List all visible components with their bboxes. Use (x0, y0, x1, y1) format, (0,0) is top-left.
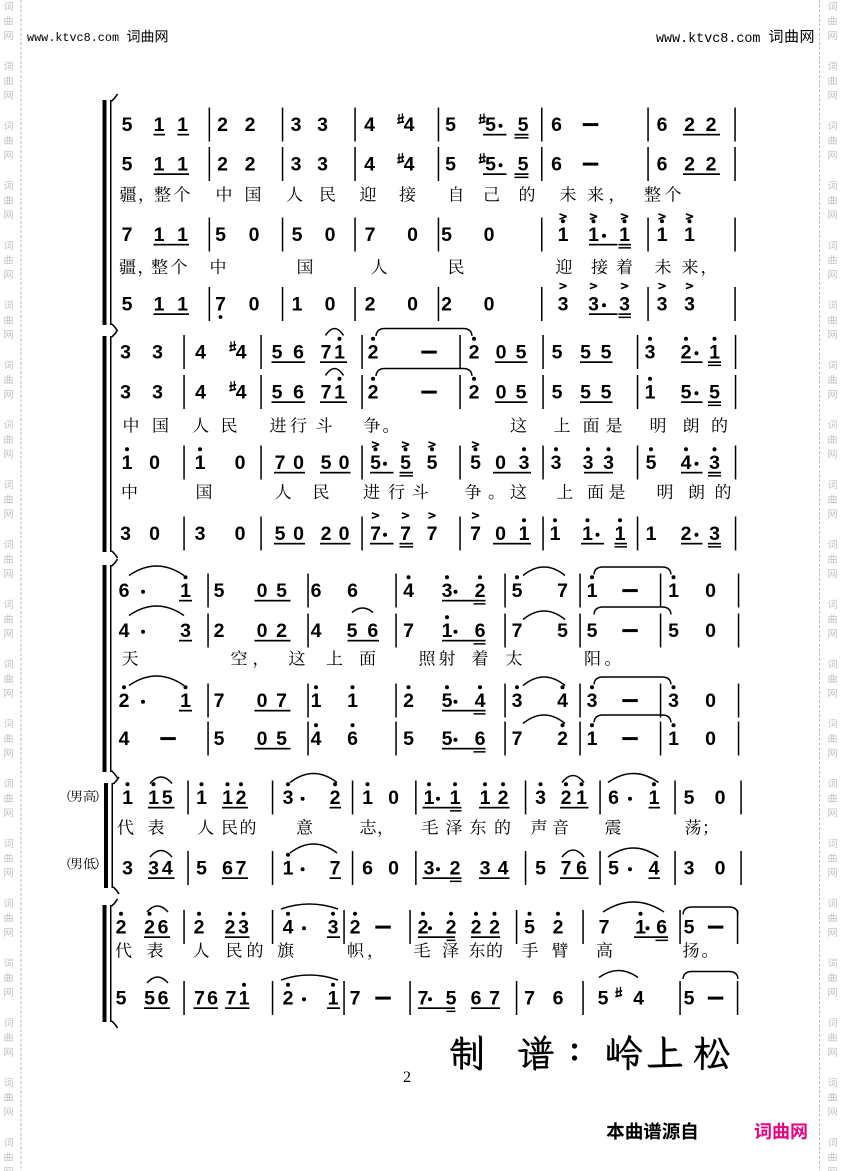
svg-text:5: 5 (116, 988, 127, 1010)
svg-text:5: 5 (580, 382, 591, 404)
svg-text:1: 1 (334, 342, 345, 364)
svg-text:5: 5 (445, 114, 456, 136)
svg-text:2: 2 (119, 690, 130, 712)
svg-text:4: 4 (162, 858, 173, 880)
svg-text:2: 2 (194, 917, 205, 939)
svg-text:1: 1 (292, 294, 303, 316)
svg-text:2: 2 (681, 342, 692, 364)
svg-text:7: 7 (599, 917, 610, 939)
svg-text:0: 0 (249, 294, 260, 316)
svg-text:7: 7 (226, 988, 237, 1010)
svg-text:5: 5 (516, 342, 527, 364)
svg-text:1: 1 (347, 690, 358, 712)
svg-text:2: 2 (471, 917, 482, 939)
svg-text:0: 0 (715, 787, 726, 809)
svg-text:2: 2 (553, 917, 564, 939)
svg-text:2: 2 (214, 620, 225, 642)
svg-text:0: 0 (149, 452, 160, 474)
svg-text:2: 2 (706, 154, 717, 176)
svg-text:4: 4 (633, 988, 644, 1010)
svg-text:5: 5 (557, 620, 568, 642)
svg-text:0: 0 (705, 620, 716, 642)
svg-text:1: 1 (619, 224, 630, 246)
svg-text:6: 6 (367, 620, 378, 642)
svg-text:5: 5 (446, 988, 457, 1010)
svg-text:4: 4 (311, 728, 322, 750)
svg-text:2: 2 (368, 382, 379, 404)
svg-text:3: 3 (512, 690, 523, 712)
svg-text:6: 6 (657, 114, 668, 136)
svg-text:5: 5 (442, 728, 453, 750)
svg-text:3: 3 (558, 294, 569, 316)
svg-text:5: 5 (441, 224, 452, 246)
svg-text:2: 2 (245, 154, 256, 176)
svg-text:1: 1 (558, 224, 569, 246)
svg-text:3: 3 (619, 294, 630, 316)
svg-text:2: 2 (368, 342, 379, 364)
svg-text:4: 4 (119, 728, 130, 750)
svg-text:7: 7 (470, 523, 481, 545)
svg-text:4: 4 (557, 690, 568, 712)
svg-text:5: 5 (122, 114, 133, 136)
svg-text:4: 4 (404, 114, 415, 136)
svg-text:5: 5 (601, 382, 612, 404)
svg-text:2: 2 (276, 620, 287, 642)
svg-text:www.ktvc8.com: www.ktvc8.com (656, 32, 760, 47)
svg-text:7: 7 (350, 988, 361, 1010)
svg-text:5: 5 (442, 690, 453, 712)
svg-text:0: 0 (407, 224, 418, 246)
svg-text:7: 7 (418, 988, 429, 1010)
svg-text:5: 5 (518, 114, 529, 136)
svg-text:5: 5 (681, 382, 692, 404)
svg-text:1: 1 (646, 523, 657, 545)
svg-text:2: 2 (217, 154, 228, 176)
svg-text:2: 2 (245, 114, 256, 136)
svg-text:6: 6 (551, 154, 562, 176)
svg-text:1: 1 (154, 114, 165, 136)
svg-text:3: 3 (519, 452, 530, 474)
svg-text:4: 4 (119, 620, 130, 642)
svg-text:1: 1 (154, 294, 165, 316)
svg-text:5: 5 (598, 988, 609, 1010)
svg-text:2: 2 (489, 917, 500, 939)
svg-text:1: 1 (587, 728, 598, 750)
svg-text:5: 5 (552, 382, 563, 404)
svg-text:3: 3 (583, 452, 594, 474)
svg-text:6: 6 (347, 580, 358, 602)
svg-text:4: 4 (475, 690, 486, 712)
svg-text:6: 6 (576, 858, 587, 880)
svg-text:5: 5 (552, 342, 563, 364)
svg-text:0: 0 (257, 728, 268, 750)
svg-text:7: 7 (403, 620, 414, 642)
svg-text:3: 3 (328, 917, 339, 939)
svg-text:1: 1 (177, 154, 188, 176)
svg-text:3: 3 (317, 154, 328, 176)
svg-text:5: 5 (684, 988, 695, 1010)
svg-text:6: 6 (657, 154, 668, 176)
svg-text:2: 2 (681, 523, 692, 545)
svg-text:0: 0 (149, 523, 160, 545)
svg-text:2: 2 (365, 294, 376, 316)
svg-text:4: 4 (681, 452, 692, 474)
svg-text:1: 1 (615, 523, 626, 545)
svg-text:7: 7 (427, 523, 438, 545)
svg-text:5: 5 (587, 620, 598, 642)
svg-text:3: 3 (152, 342, 163, 364)
svg-text:3: 3 (684, 294, 695, 316)
svg-text:7: 7 (512, 620, 523, 642)
svg-text:1: 1 (649, 787, 660, 809)
svg-text:7: 7 (365, 224, 376, 246)
svg-text:5: 5 (470, 452, 481, 474)
svg-text:3: 3 (291, 114, 302, 136)
svg-text:3: 3 (195, 523, 206, 545)
svg-text:1: 1 (519, 523, 530, 545)
svg-text:2: 2 (446, 917, 457, 939)
svg-text:4: 4 (311, 620, 322, 642)
svg-text:3: 3 (535, 787, 546, 809)
svg-text:5: 5 (275, 523, 286, 545)
svg-text:2: 2 (321, 523, 332, 545)
svg-text:2: 2 (144, 917, 155, 939)
svg-text:1: 1 (180, 580, 191, 602)
svg-text:1: 1 (684, 224, 695, 246)
svg-text:7: 7 (236, 858, 247, 880)
svg-text:7: 7 (321, 382, 332, 404)
svg-text:6: 6 (347, 728, 358, 750)
svg-text:5: 5 (518, 154, 529, 176)
svg-text:4: 4 (236, 342, 247, 364)
svg-text:5: 5 (370, 452, 381, 474)
svg-text:3: 3 (442, 580, 453, 602)
svg-text:5: 5 (608, 858, 619, 880)
svg-text:2: 2 (116, 917, 127, 939)
svg-text:6: 6 (475, 728, 486, 750)
svg-text:5: 5 (215, 224, 226, 246)
svg-text:0: 0 (705, 728, 716, 750)
svg-text:0: 0 (249, 224, 260, 246)
svg-text:7: 7 (194, 988, 205, 1010)
svg-text:1: 1 (195, 452, 206, 474)
svg-text:5: 5 (276, 580, 287, 602)
svg-text:6: 6 (158, 988, 169, 1010)
svg-text:3: 3 (424, 858, 435, 880)
svg-text:1: 1 (645, 382, 656, 404)
svg-text:2: 2 (469, 382, 480, 404)
svg-text:5: 5 (321, 452, 332, 474)
svg-text:2: 2 (706, 114, 717, 136)
svg-text:5: 5 (162, 787, 173, 809)
svg-text:5: 5 (684, 787, 695, 809)
svg-text:6: 6 (475, 620, 486, 642)
svg-text:1: 1 (239, 988, 250, 1010)
svg-text:5: 5 (485, 154, 496, 176)
svg-text:1: 1 (334, 382, 345, 404)
svg-text:6: 6 (293, 342, 304, 364)
svg-text:3: 3 (709, 452, 720, 474)
svg-text:4: 4 (403, 580, 414, 602)
svg-text:0: 0 (235, 452, 246, 474)
svg-text:7: 7 (276, 690, 287, 712)
svg-text:5: 5 (601, 342, 612, 364)
svg-text:2: 2 (441, 294, 452, 316)
svg-text:5: 5 (400, 452, 411, 474)
svg-text:2: 2 (403, 1069, 411, 1086)
svg-text:0: 0 (495, 452, 506, 474)
svg-text:7: 7 (524, 988, 535, 1010)
svg-text:5: 5 (144, 988, 155, 1010)
svg-text:5: 5 (214, 728, 225, 750)
svg-text:5: 5 (512, 580, 523, 602)
svg-text:1: 1 (588, 224, 599, 246)
svg-text:7: 7 (557, 580, 568, 602)
svg-text:4: 4 (364, 114, 375, 136)
svg-text:7: 7 (214, 690, 225, 712)
svg-text:5: 5 (580, 342, 591, 364)
svg-text:5: 5 (122, 154, 133, 176)
svg-text:6: 6 (471, 988, 482, 1010)
svg-text:7: 7 (370, 523, 381, 545)
svg-text:1: 1 (222, 787, 233, 809)
svg-text:0: 0 (407, 294, 418, 316)
svg-text:7: 7 (275, 452, 286, 474)
svg-text:4: 4 (195, 342, 206, 364)
svg-text:7: 7 (321, 342, 332, 364)
svg-text:1: 1 (362, 787, 373, 809)
svg-text:3: 3 (317, 114, 328, 136)
svg-text:3: 3 (587, 690, 598, 712)
svg-text:4: 4 (283, 917, 294, 939)
svg-text:0: 0 (705, 690, 716, 712)
svg-text:0: 0 (325, 294, 336, 316)
svg-text:0: 0 (235, 523, 246, 545)
svg-text:7: 7 (122, 224, 133, 246)
svg-text:1: 1 (180, 690, 191, 712)
svg-text:0: 0 (257, 620, 268, 642)
svg-text:5: 5 (485, 114, 496, 136)
svg-text:2: 2 (498, 787, 509, 809)
svg-text:4: 4 (649, 858, 660, 880)
svg-text:2: 2 (561, 787, 572, 809)
svg-text:6: 6 (362, 858, 373, 880)
svg-text:2: 2 (418, 917, 429, 939)
svg-text:0: 0 (495, 523, 506, 545)
svg-text:5: 5 (427, 452, 438, 474)
svg-text:3: 3 (684, 858, 695, 880)
svg-text:3: 3 (657, 294, 668, 316)
svg-text:3: 3 (551, 452, 562, 474)
svg-text:3: 3 (238, 917, 249, 939)
svg-text:3: 3 (122, 858, 133, 880)
svg-text:4: 4 (236, 382, 247, 404)
svg-text:0: 0 (715, 858, 726, 880)
svg-text:5: 5 (276, 728, 287, 750)
svg-text:0: 0 (388, 858, 399, 880)
svg-text:6: 6 (207, 988, 218, 1010)
svg-text:5: 5 (272, 382, 283, 404)
svg-text:6: 6 (158, 917, 169, 939)
svg-text:1: 1 (576, 787, 587, 809)
svg-text:0: 0 (705, 580, 716, 602)
svg-text:1: 1 (196, 787, 207, 809)
svg-text:2: 2 (475, 580, 486, 602)
svg-text:3: 3 (709, 523, 720, 545)
svg-text:4: 4 (404, 154, 415, 176)
svg-text:1: 1 (122, 787, 133, 809)
svg-text:1: 1 (635, 917, 646, 939)
svg-text:5: 5 (684, 917, 695, 939)
svg-text:1: 1 (657, 224, 668, 246)
svg-text:5: 5 (292, 224, 303, 246)
svg-text:7: 7 (400, 523, 411, 545)
svg-text:www.ktvc8.com: www.ktvc8.com (27, 31, 119, 45)
svg-text:6: 6 (293, 382, 304, 404)
svg-text:6: 6 (551, 114, 562, 136)
svg-text:0: 0 (496, 342, 507, 364)
svg-text:2: 2 (684, 114, 695, 136)
svg-text:7: 7 (489, 988, 500, 1010)
svg-text:1: 1 (582, 523, 593, 545)
svg-text:2: 2 (469, 342, 480, 364)
svg-text:3: 3 (152, 382, 163, 404)
svg-text:0: 0 (339, 523, 350, 545)
svg-text:5: 5 (646, 452, 657, 474)
svg-text:3: 3 (291, 154, 302, 176)
svg-text:1: 1 (442, 620, 453, 642)
svg-text:5: 5 (535, 858, 546, 880)
svg-text:1: 1 (148, 787, 159, 809)
svg-text:0: 0 (293, 523, 304, 545)
svg-text:5: 5 (524, 917, 535, 939)
svg-text:1: 1 (154, 224, 165, 246)
svg-text:3: 3 (148, 858, 159, 880)
svg-text:5: 5 (196, 858, 207, 880)
svg-text:3: 3 (645, 342, 656, 364)
svg-text:0: 0 (293, 452, 304, 474)
svg-text:7: 7 (215, 294, 226, 316)
svg-text:5: 5 (272, 342, 283, 364)
svg-text:7: 7 (561, 858, 572, 880)
svg-text:2: 2 (283, 988, 294, 1010)
svg-text:3: 3 (283, 787, 294, 809)
svg-text:0: 0 (484, 294, 495, 316)
svg-text:2: 2 (225, 917, 236, 939)
svg-text:0: 0 (257, 580, 268, 602)
svg-text:3: 3 (120, 342, 131, 364)
svg-text:0: 0 (257, 690, 268, 712)
svg-text:0: 0 (388, 787, 399, 809)
svg-text:2: 2 (217, 114, 228, 136)
svg-text:1: 1 (424, 787, 435, 809)
svg-text:2: 2 (557, 728, 568, 750)
svg-text:2: 2 (450, 858, 461, 880)
svg-text:7: 7 (330, 858, 341, 880)
svg-text:3: 3 (180, 620, 191, 642)
svg-text:1: 1 (311, 690, 322, 712)
svg-text:6: 6 (222, 858, 233, 880)
svg-text:1: 1 (668, 728, 679, 750)
svg-text:5: 5 (347, 620, 358, 642)
svg-text:2: 2 (330, 787, 341, 809)
svg-text:1: 1 (328, 988, 339, 1010)
svg-text:4: 4 (364, 154, 375, 176)
svg-text:2: 2 (350, 917, 361, 939)
svg-text:7: 7 (512, 728, 523, 750)
svg-text:5: 5 (214, 580, 225, 602)
svg-text:0: 0 (339, 452, 350, 474)
svg-text:5: 5 (668, 620, 679, 642)
svg-text:2: 2 (403, 690, 414, 712)
svg-text:5: 5 (709, 382, 720, 404)
svg-text:0: 0 (325, 224, 336, 246)
svg-text:6: 6 (311, 580, 322, 602)
svg-text:1: 1 (177, 114, 188, 136)
svg-text:1: 1 (587, 580, 598, 602)
svg-text:4: 4 (195, 382, 206, 404)
svg-text:1: 1 (668, 580, 679, 602)
svg-text:1: 1 (177, 224, 188, 246)
svg-text:6: 6 (656, 917, 667, 939)
svg-text:1: 1 (122, 452, 133, 474)
svg-text:2: 2 (684, 154, 695, 176)
svg-text:0: 0 (496, 382, 507, 404)
svg-text:1: 1 (283, 858, 294, 880)
svg-text:3: 3 (120, 382, 131, 404)
svg-text:1: 1 (450, 787, 461, 809)
svg-text:1: 1 (550, 523, 561, 545)
svg-text:5: 5 (445, 154, 456, 176)
svg-text:6: 6 (608, 787, 619, 809)
svg-text:5: 5 (122, 294, 133, 316)
svg-text:0: 0 (484, 224, 495, 246)
svg-text:3: 3 (603, 452, 614, 474)
svg-text:6: 6 (553, 988, 564, 1010)
svg-text:1: 1 (154, 154, 165, 176)
svg-text:1: 1 (480, 787, 491, 809)
svg-text:3: 3 (588, 294, 599, 316)
svg-text:3: 3 (120, 523, 131, 545)
svg-text:1: 1 (709, 342, 720, 364)
svg-text:3: 3 (480, 858, 491, 880)
svg-text:3: 3 (668, 690, 679, 712)
svg-text:1: 1 (177, 294, 188, 316)
svg-text:4: 4 (498, 858, 509, 880)
svg-text:5: 5 (403, 728, 414, 750)
svg-text:5: 5 (516, 382, 527, 404)
svg-text:6: 6 (119, 580, 130, 602)
svg-text:2: 2 (236, 787, 247, 809)
